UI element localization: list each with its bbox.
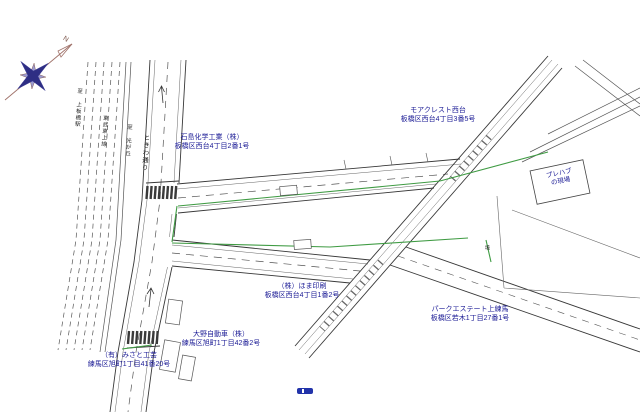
site-name: （株）ほま印刷 — [265, 283, 340, 292]
boundary-label: 境 — [484, 245, 491, 250]
compass-rose-icon — [5, 44, 72, 100]
page-mark — [297, 388, 313, 394]
site-address: 練馬区旭町1丁目41番20号 — [88, 361, 170, 370]
traffic-arrow — [159, 86, 165, 103]
branch-road — [390, 196, 640, 352]
north-arrow-flag — [58, 44, 72, 57]
site-label-homa: （株）ほま印刷 板橋区西台4丁目1番2号 — [265, 283, 340, 300]
site-address: 板橋区西台4丁目2番1号 — [175, 143, 250, 152]
site-name: 石島化学工業（株） — [175, 134, 250, 143]
crosswalk-upper — [147, 186, 177, 199]
map-canvas: 石島化学工業（株） 板橋区西台4丁目2番1号 モアクレスト西台 板橋区西台4丁目… — [0, 0, 640, 412]
site-name: 大野自動車（株） — [182, 331, 261, 340]
site-plan-drawing — [0, 0, 640, 412]
site-label-misato: （有）みさと工芸 練馬区旭町1丁目41番20号 — [88, 352, 170, 369]
site-name: パークエステート上練馬 — [431, 306, 510, 315]
site-label-ohno: 大野自動車（株） 練馬区旭町1丁目42番2号 — [182, 331, 261, 348]
site-address: 板橋区若木1丁目27番1号 — [431, 315, 510, 324]
site-label-park-estate: パークエステート上練馬 板橋区若木1丁目27番1号 — [431, 306, 510, 323]
site-name: （有）みさと工芸 — [88, 352, 170, 361]
site-name: モアクレスト西台 — [401, 107, 476, 116]
traffic-arrow — [147, 288, 154, 307]
site-address: 練馬区旭町1丁目42番2号 — [182, 340, 261, 349]
crosswalk-lower — [128, 331, 158, 344]
site-address: 板橋区西台4丁目1番2号 — [265, 292, 340, 301]
site-label-ishijima: 石島化学工業（株） 板橋区西台4丁目2番1号 — [175, 134, 250, 151]
railway-lines — [58, 62, 131, 352]
site-label-moacrest: モアクレスト西台 板橋区西台4丁目3番5号 — [401, 107, 476, 124]
site-address: 板橋区西台4丁目3番5号 — [401, 116, 476, 125]
